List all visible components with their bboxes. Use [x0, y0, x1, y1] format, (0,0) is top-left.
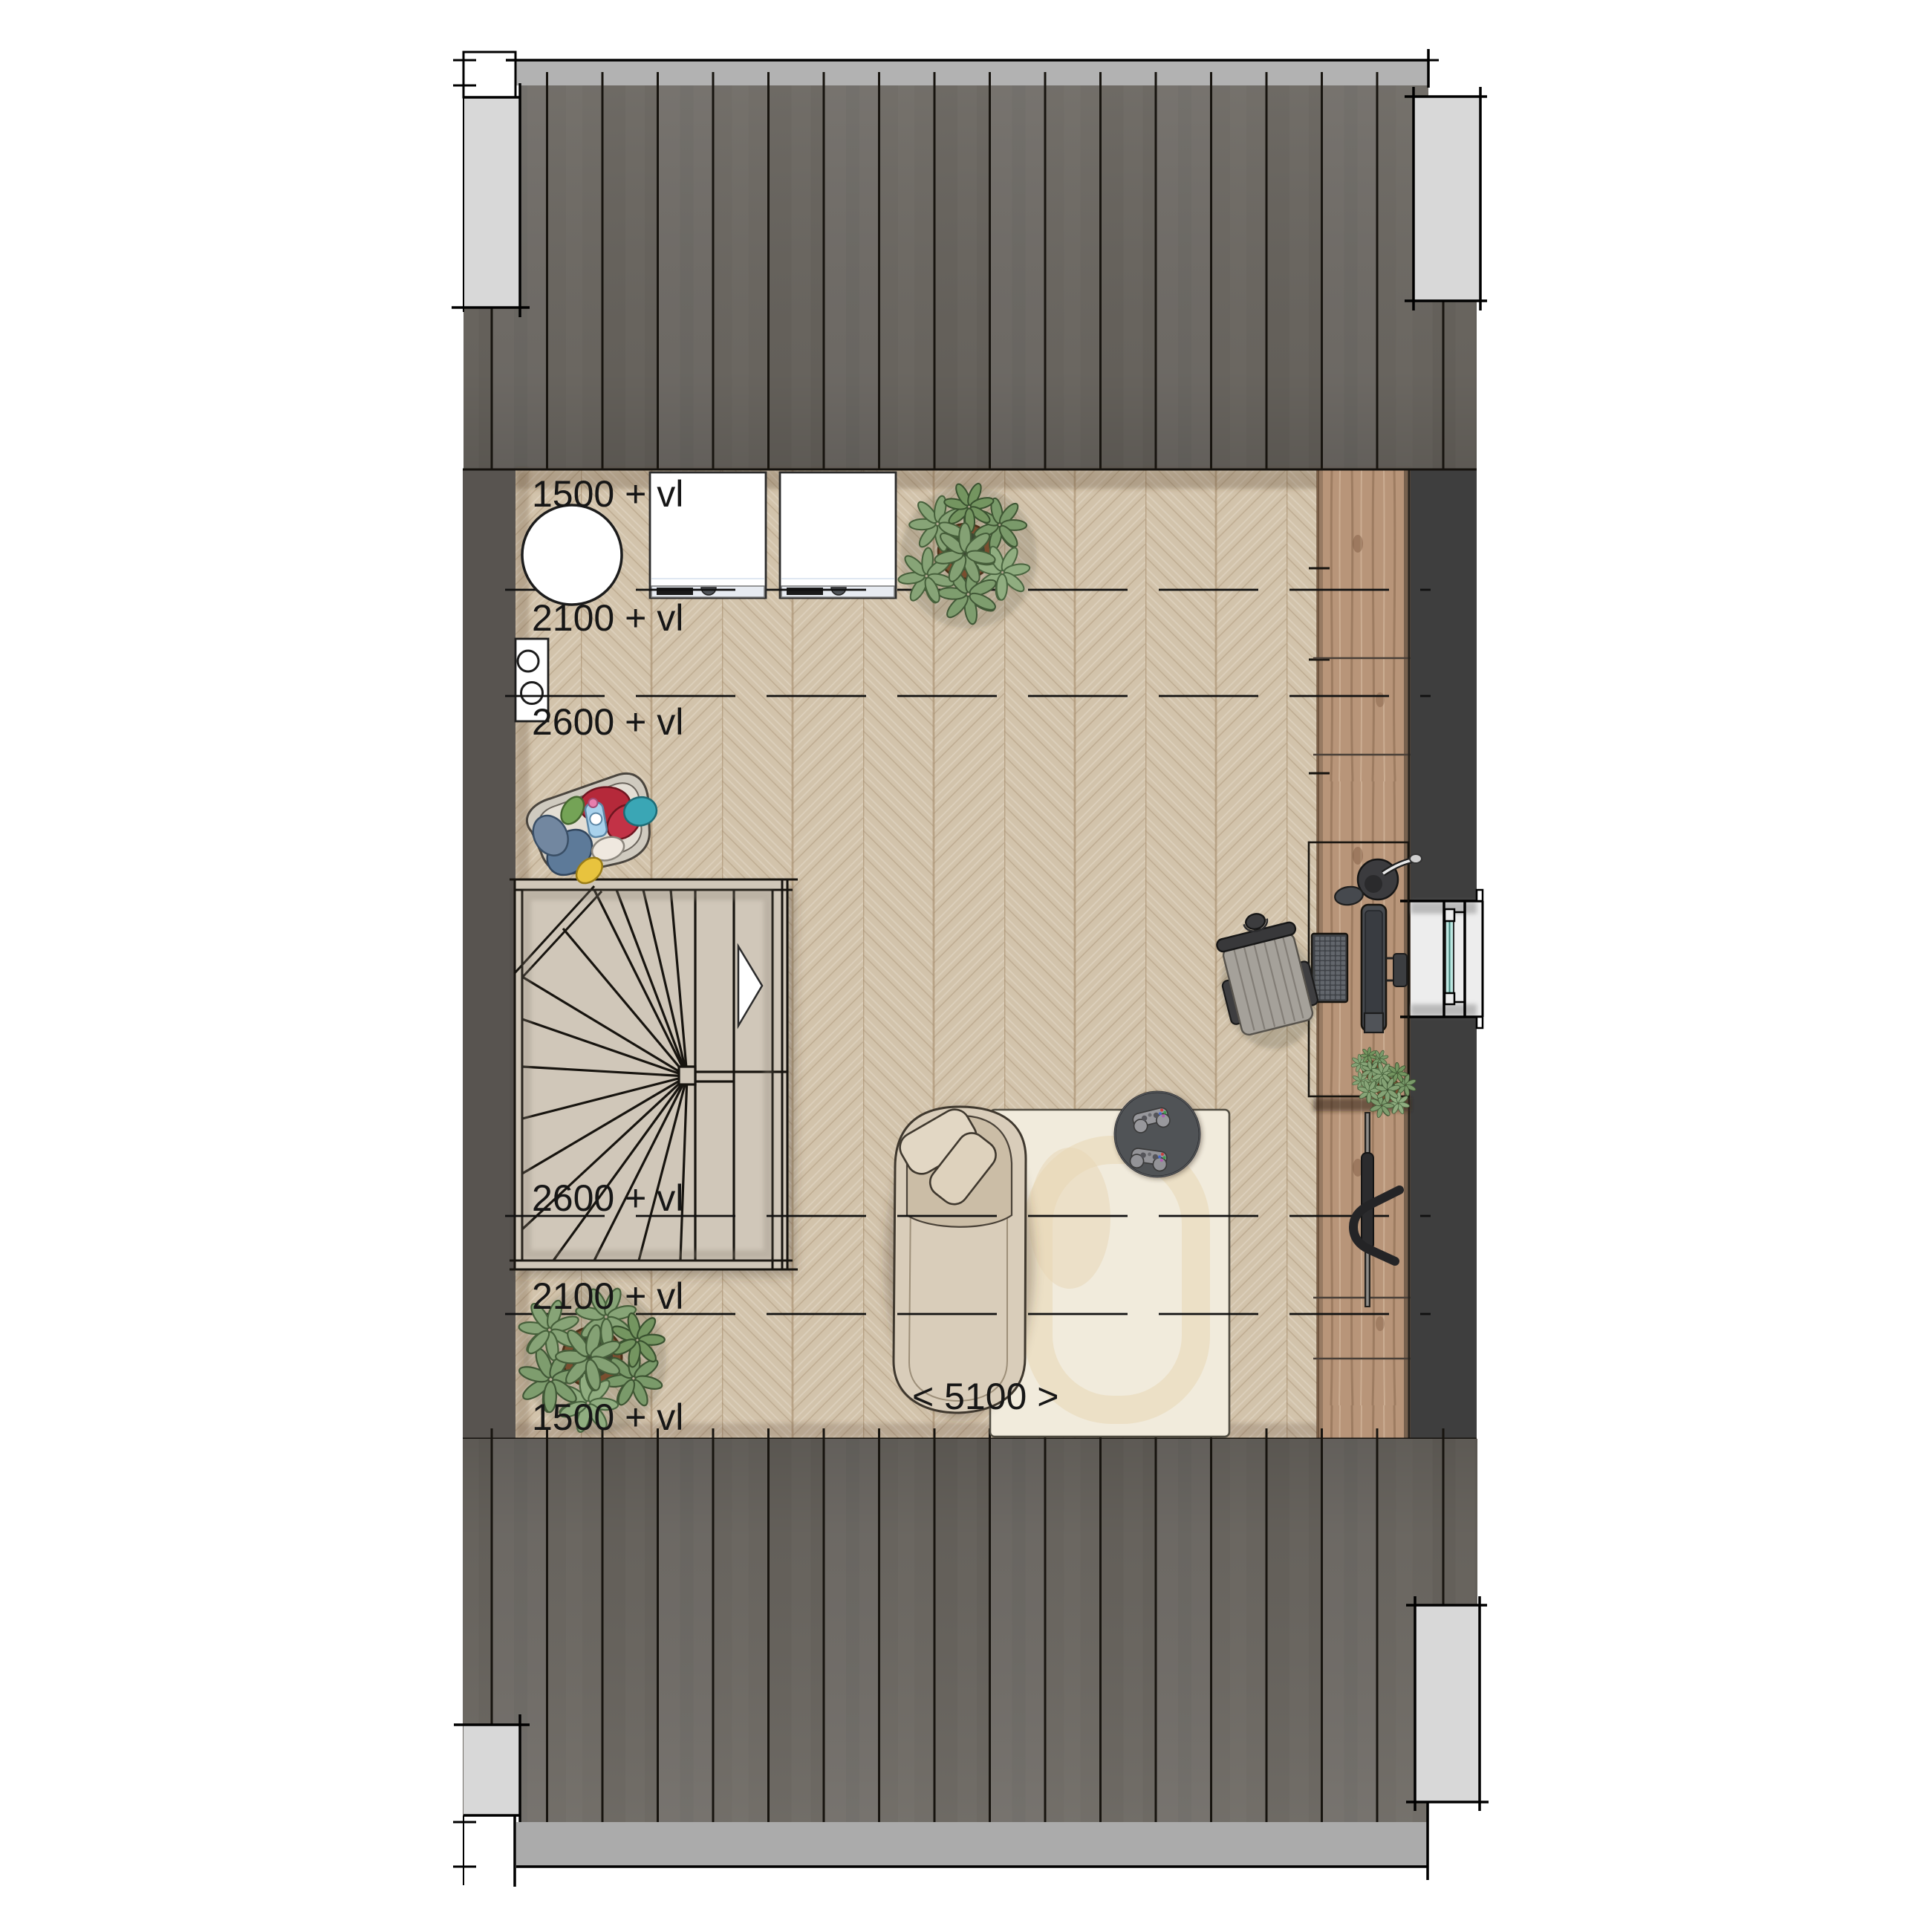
- svg-text:2600 + vl: 2600 + vl: [532, 701, 683, 743]
- svg-text:2100 + vl: 2100 + vl: [532, 597, 683, 639]
- svg-text:2600 + vl: 2600 + vl: [532, 1177, 683, 1219]
- svg-text:< 5100 >: < 5100 >: [912, 1376, 1058, 1417]
- svg-text:1500 + vl: 1500 + vl: [532, 473, 683, 515]
- svg-text:2100 + vl: 2100 + vl: [532, 1275, 683, 1317]
- svg-text:1500 + vl: 1500 + vl: [532, 1396, 683, 1438]
